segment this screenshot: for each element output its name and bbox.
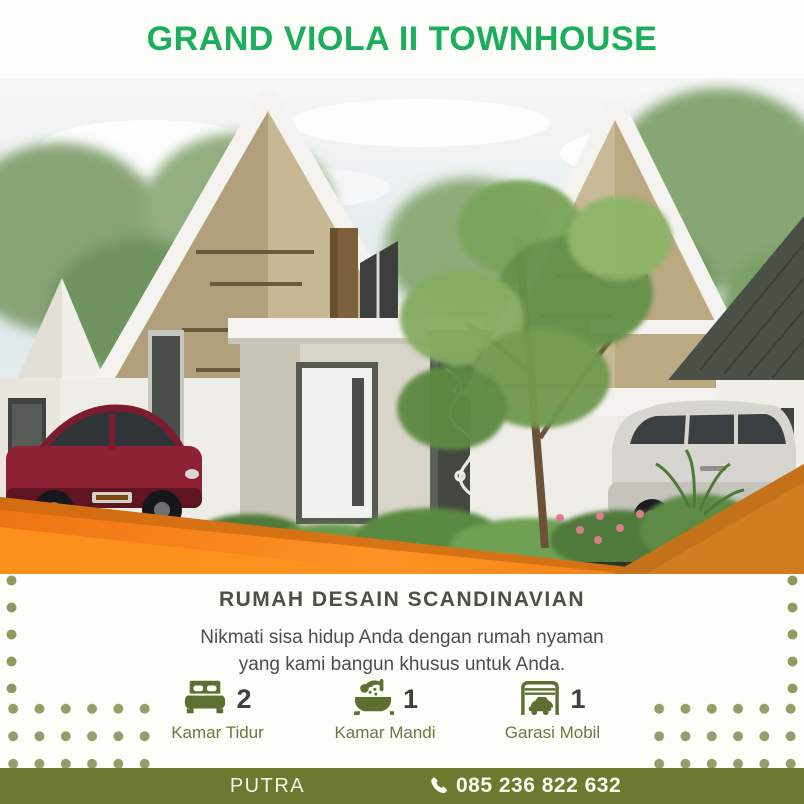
bathroom-count: 1	[403, 684, 418, 715]
dot-column-right	[785, 567, 800, 693]
footer-bar: PUTRA 085 236 822 632	[0, 768, 804, 804]
phone-number: 085 236 822 632	[456, 774, 621, 798]
garage-icon	[519, 678, 561, 721]
dot-grid-right	[646, 695, 804, 768]
hero-image	[0, 78, 804, 574]
feature-bedrooms: 2 Kamar Tidur	[140, 680, 295, 743]
phone-contact: 085 236 822 632	[428, 768, 621, 804]
feature-garage: 1 Garasi Mobil	[475, 680, 630, 743]
brand-name: PUTRA	[200, 768, 335, 804]
bathroom-label: Kamar Mandi	[334, 723, 435, 743]
bath-icon	[352, 678, 394, 721]
flyer: GRAND VIOLA II TOWNHOUSE	[0, 0, 804, 804]
feature-list: 2 Kamar Tidur	[140, 680, 630, 743]
body-line-1: Nikmati sisa hidup Anda dengan rumah nya…	[0, 624, 804, 651]
bed-icon	[183, 679, 227, 720]
bedroom-label: Kamar Tidur	[171, 723, 264, 743]
page-title: GRAND VIOLA II TOWNHOUSE	[147, 20, 658, 59]
dot-grid-left	[0, 695, 158, 768]
garage-count: 1	[570, 684, 585, 715]
body-line-2: yang kami bangun khusus untuk Anda.	[0, 651, 804, 678]
dot-column-left	[4, 567, 19, 693]
garage-label: Garasi Mobil	[505, 723, 600, 743]
feature-bathrooms: 1 Kamar Mandi	[308, 680, 463, 743]
bedroom-count: 2	[236, 684, 251, 715]
section-body: Nikmati sisa hidup Anda dengan rumah nya…	[0, 624, 804, 678]
townhouse-illustration	[0, 78, 804, 574]
phone-icon	[428, 777, 447, 796]
section-heading: RUMAH DESAIN SCANDINAVIAN	[0, 588, 804, 612]
header: GRAND VIOLA II TOWNHOUSE	[0, 0, 804, 78]
